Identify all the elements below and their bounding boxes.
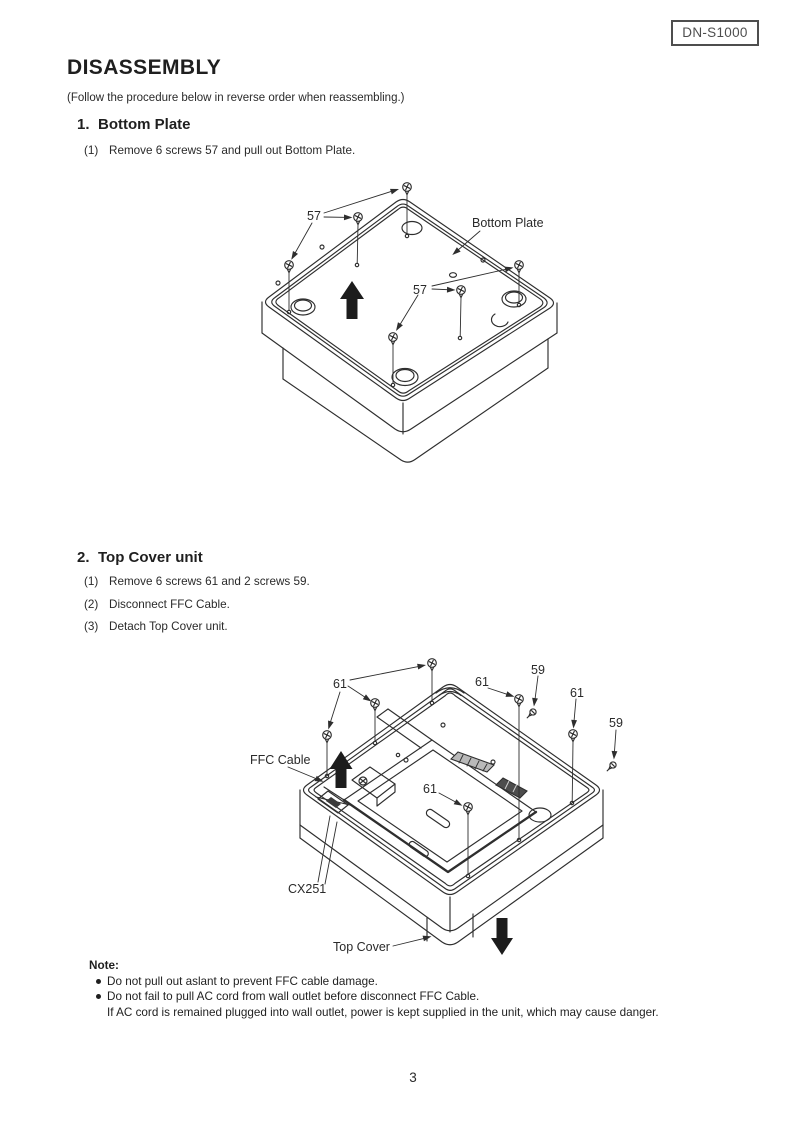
note-bullet: Do not fail to pull AC cord from wall ou… xyxy=(89,989,729,1005)
bottom-plate-feet xyxy=(291,222,526,386)
up-arrow-icon xyxy=(340,281,364,319)
step-number: (1) xyxy=(84,144,109,157)
note-bullet-text: Do not fail to pull AC cord from wall ou… xyxy=(107,989,479,1005)
screw-label-59: 59 xyxy=(609,716,623,730)
screw-61-icon xyxy=(323,731,332,743)
section-number: 1. xyxy=(77,116,98,133)
down-arrow-icon xyxy=(491,918,513,955)
note-bullet-text: Do not pull out aslant to prevent FFC ca… xyxy=(107,974,378,990)
model-badge: DN-S1000 xyxy=(671,20,759,46)
up-arrow-icon xyxy=(330,751,353,788)
step-text: Detach Top Cover unit. xyxy=(109,620,228,633)
screw-57-icon xyxy=(285,261,294,273)
board-slots xyxy=(325,701,573,877)
screw-57-icon xyxy=(403,183,412,195)
step-number: (2) xyxy=(84,598,109,611)
screw-57-icon xyxy=(515,261,524,273)
note-block: Note: Do not pull out aslant to prevent … xyxy=(89,958,729,1020)
part-label-top-cover: Top Cover xyxy=(333,940,390,954)
screw-59-icon xyxy=(605,761,617,773)
screw-label-59: 59 xyxy=(531,663,545,677)
screw-59-icon xyxy=(525,708,537,720)
part-label-cx251: CX251 xyxy=(288,882,326,896)
bullet-icon xyxy=(96,994,101,999)
top-cover-body-outline xyxy=(300,685,603,945)
note-bullet: Do not pull out aslant to prevent FFC ca… xyxy=(89,974,729,990)
note-continuation: If AC cord is remained plugged into wall… xyxy=(107,1005,729,1021)
step-text: Remove 6 screws 61 and 2 screws 59. xyxy=(109,575,310,588)
screw-61-icon xyxy=(428,659,437,671)
step-item: (1)Remove 6 screws 57 and pull out Botto… xyxy=(84,144,355,157)
bottom-plate-body-outline xyxy=(262,200,557,463)
section-title: Bottom Plate xyxy=(98,116,191,133)
diagram-top-cover: 61 61 61 61 59 59 FFC Cable CX251 Top Co… xyxy=(230,648,660,968)
section-number: 2. xyxy=(77,549,98,566)
screw-57-icon xyxy=(457,286,466,298)
page-subtitle: (Follow the procedure below in reverse o… xyxy=(67,92,405,104)
step-number: (3) xyxy=(84,620,109,633)
step-number: (1) xyxy=(84,575,109,588)
manual-page: DN-S1000 DISASSEMBLY (Follow the procedu… xyxy=(0,0,793,1122)
screw-label-57: 57 xyxy=(307,209,321,223)
screw-57-icon xyxy=(389,333,398,345)
part-label-ffc-cable: FFC Cable xyxy=(250,753,310,767)
connectors xyxy=(451,752,527,798)
bullet-icon xyxy=(96,979,101,984)
screw-label-61: 61 xyxy=(333,677,347,691)
step-text: Remove 6 screws 57 and pull out Bottom P… xyxy=(109,144,355,157)
section-title: Top Cover unit xyxy=(98,549,203,566)
screw-61-icon xyxy=(371,699,380,711)
page-number: 3 xyxy=(373,1070,453,1085)
screw-label-61: 61 xyxy=(570,686,584,700)
screw-label-57: 57 xyxy=(413,283,427,297)
leader-arrowheads xyxy=(289,186,514,332)
screw-61-icon xyxy=(464,803,473,815)
step-item: (2)Disconnect FFC Cable. xyxy=(84,598,230,611)
step-text: Disconnect FFC Cable. xyxy=(109,598,230,611)
screw-label-61: 61 xyxy=(423,782,437,796)
section-heading-top-cover: 2.Top Cover unit xyxy=(77,549,203,566)
note-title: Note: xyxy=(89,958,729,974)
screw-61-icon xyxy=(569,730,578,742)
step-item: (1)Remove 6 screws 61 and 2 screws 59. xyxy=(84,575,310,588)
diagram-bottom-plate: 57 57 Bottom Plate xyxy=(240,165,590,485)
part-label-bottom-plate: Bottom Plate xyxy=(472,216,544,230)
page-title: DISASSEMBLY xyxy=(67,56,221,80)
screw-61-icon xyxy=(515,695,524,707)
step-item: (3)Detach Top Cover unit. xyxy=(84,620,228,633)
screw-57-icon xyxy=(354,213,363,225)
section-heading-bottom-plate: 1.Bottom Plate xyxy=(77,116,191,133)
screw-label-61: 61 xyxy=(475,675,489,689)
